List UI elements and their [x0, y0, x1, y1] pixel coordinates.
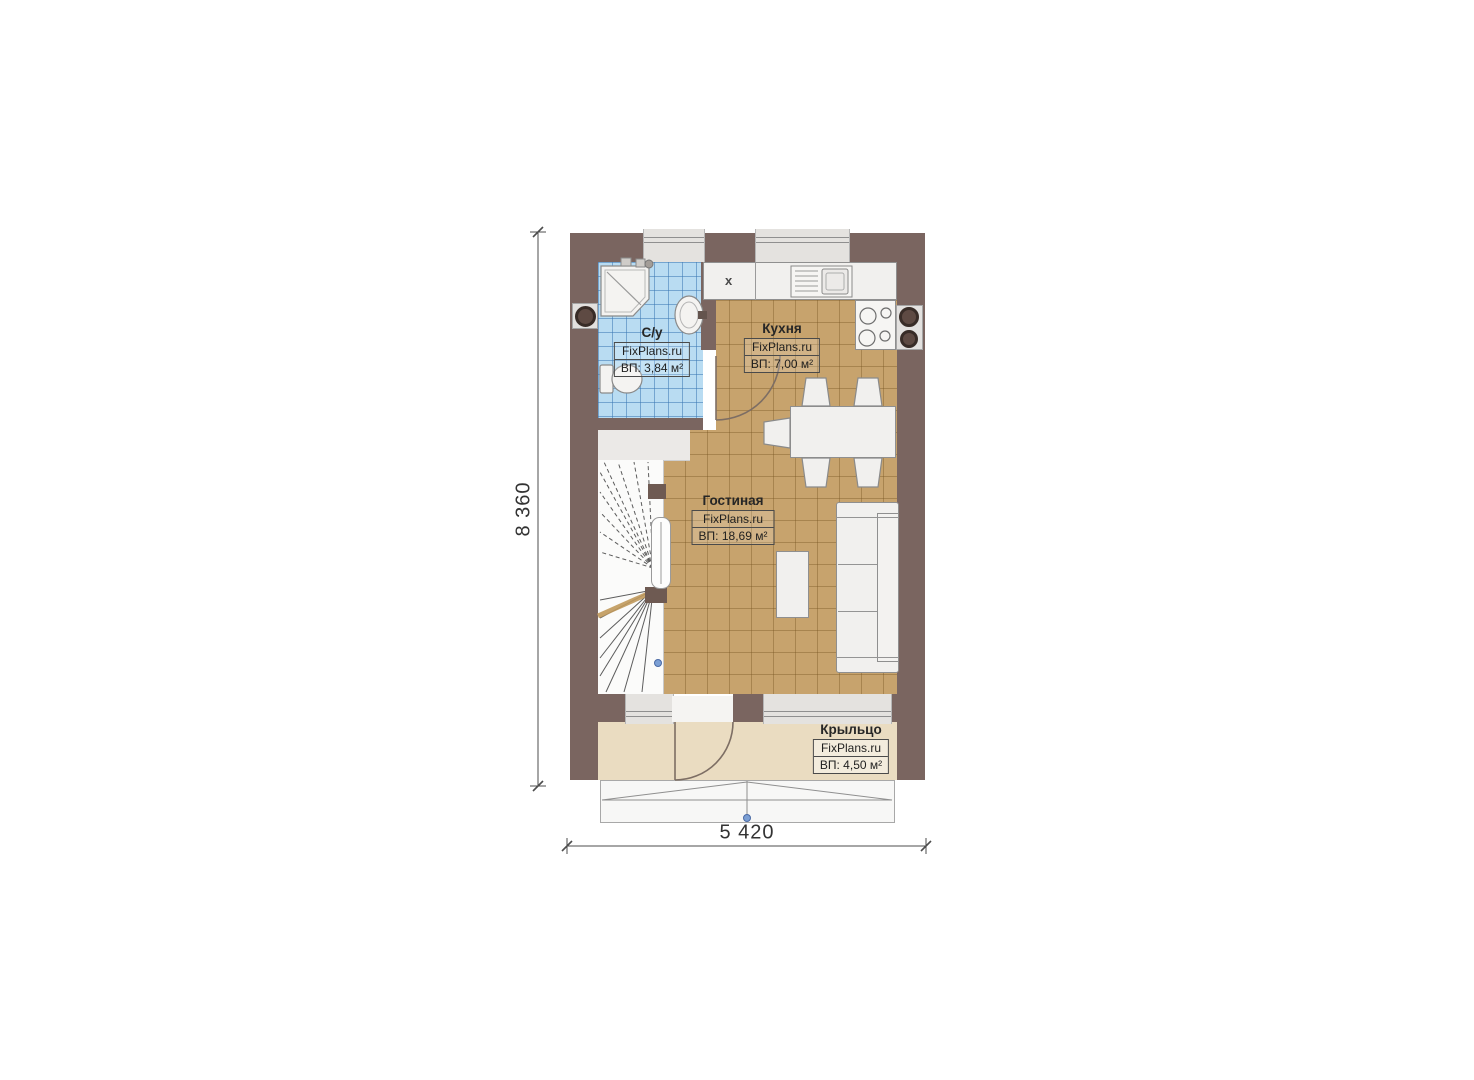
- room-label-living: Гостиная FixPlans.ru ВП: 18,69 м²: [692, 493, 775, 545]
- entrance-door-opening: [672, 696, 733, 722]
- floor-plan-canvas: x: [0, 0, 1474, 1080]
- coffee-table: [776, 551, 809, 618]
- brand-label: FixPlans.ru: [615, 343, 689, 359]
- room-name-porch: Крыльцо: [813, 722, 889, 737]
- vent-right-icon-1: [899, 307, 919, 327]
- label-box-kitchen: FixPlans.ru ВП: 7,00 м²: [744, 338, 820, 373]
- vent-right-icon-2: [900, 330, 918, 348]
- window-top-kitchen: [755, 229, 850, 262]
- brand-label: FixPlans.ru: [745, 339, 819, 355]
- sofa-seats: [838, 517, 877, 658]
- dim-horizontal-label: 5 420: [719, 822, 774, 845]
- brand-label: FixPlans.ru: [693, 511, 774, 527]
- stair-landing: [598, 430, 690, 461]
- room-name-bathroom: С/у: [614, 325, 690, 340]
- area-label: ВП: 3,84 м²: [615, 359, 689, 376]
- sofa-backrest: [877, 513, 899, 662]
- area-label: ВП: 7,00 м²: [745, 355, 819, 372]
- label-box-living: FixPlans.ru ВП: 18,69 м²: [692, 510, 775, 545]
- dim-vertical-label: 8 360: [513, 481, 536, 536]
- label-box-bathroom: FixPlans.ru ВП: 3,84 м²: [614, 342, 690, 377]
- stove: [855, 300, 896, 350]
- dining-table: [790, 406, 896, 458]
- area-label: ВП: 4,50 м²: [814, 756, 888, 773]
- window-bottom-left: [625, 694, 674, 724]
- window-top-bathroom: [643, 229, 705, 262]
- bathroom-partition: [598, 418, 703, 430]
- room-label-kitchen: Кухня FixPlans.ru ВП: 7,00 м²: [744, 321, 820, 373]
- wall-top-mid: [703, 233, 755, 262]
- counter-x-mark: x: [725, 273, 732, 288]
- vent-left-icon: [575, 306, 596, 327]
- room-name-living: Гостиная: [692, 493, 775, 508]
- stairs-area: [598, 460, 664, 694]
- room-name-kitchen: Кухня: [744, 321, 820, 336]
- brand-label: FixPlans.ru: [814, 740, 888, 756]
- area-label: ВП: 18,69 м²: [693, 527, 774, 544]
- wall-bottom-mid: [733, 694, 763, 722]
- room-label-porch: Крыльцо FixPlans.ru ВП: 4,50 м²: [813, 722, 889, 774]
- sofa-armrest-line-top: [836, 517, 899, 518]
- room-label-bathroom: С/у FixPlans.ru ВП: 3,84 м²: [614, 325, 690, 377]
- label-box-porch: FixPlans.ru ВП: 4,50 м²: [813, 739, 889, 774]
- window-bottom-right: [763, 694, 892, 724]
- sofa-armrest-line-bottom: [836, 657, 899, 658]
- porch-steps: [600, 780, 895, 823]
- counter-divider: [755, 262, 756, 300]
- wall-bottom-left: [598, 694, 625, 722]
